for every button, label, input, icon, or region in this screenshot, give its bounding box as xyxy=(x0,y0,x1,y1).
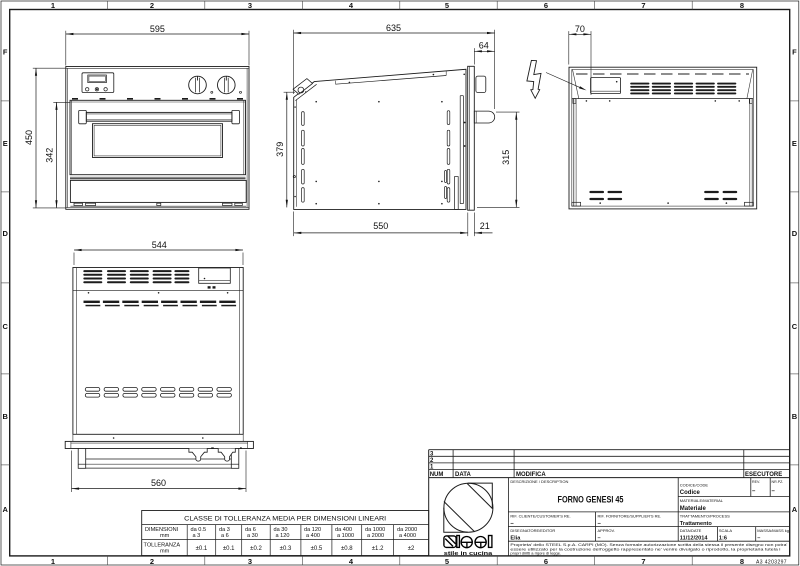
svg-text:a 30: a 30 xyxy=(247,533,258,539)
svg-text:CLASSE DI TOLLERANZA MEDIA PER: CLASSE DI TOLLERANZA MEDIA PER DIMENSION… xyxy=(184,515,386,522)
svg-text:8: 8 xyxy=(740,1,744,10)
svg-text:da 2000: da 2000 xyxy=(397,527,417,533)
svg-text:a 400: a 400 xyxy=(306,533,320,539)
svg-text:342: 342 xyxy=(45,148,55,163)
svg-text:2: 2 xyxy=(150,1,154,10)
svg-text:1: 1 xyxy=(51,557,55,566)
svg-text:TRATTAMENTO/PROCESS: TRATTAMENTO/PROCESS xyxy=(680,514,730,519)
svg-text:6: 6 xyxy=(544,1,548,10)
svg-text:8: 8 xyxy=(740,557,744,566)
svg-text:da 0.5: da 0.5 xyxy=(191,527,207,533)
svg-text:E: E xyxy=(792,139,797,148)
svg-text:propri diritti a rigore di leg: propri diritti a rigore di legge. xyxy=(510,551,561,556)
svg-text:–: – xyxy=(598,536,601,542)
svg-text:–: – xyxy=(757,536,760,542)
svg-text:A: A xyxy=(2,505,8,514)
svg-text:a 120: a 120 xyxy=(276,533,290,539)
svg-text:mm: mm xyxy=(160,549,170,555)
svg-text:±0.2: ±0.2 xyxy=(250,546,262,552)
svg-text:D: D xyxy=(792,229,798,238)
svg-text:595: 595 xyxy=(150,24,165,34)
svg-text:560: 560 xyxy=(151,478,166,488)
svg-text:1:6: 1:6 xyxy=(719,536,727,542)
svg-text:REV.: REV. xyxy=(752,480,760,484)
svg-text:a 4000: a 4000 xyxy=(399,533,416,539)
svg-text:da 6: da 6 xyxy=(245,527,256,533)
svg-text:da 3: da 3 xyxy=(219,527,230,533)
svg-text:5: 5 xyxy=(445,557,449,566)
svg-text:stile in cucina: stile in cucina xyxy=(444,551,493,557)
svg-text:7: 7 xyxy=(641,557,645,566)
svg-text:RIF. CLIENTE/CUSTOMER'S RE.: RIF. CLIENTE/CUSTOMER'S RE. xyxy=(510,514,570,519)
svg-text:F: F xyxy=(3,48,8,57)
svg-text:544: 544 xyxy=(152,240,167,250)
svg-text:a 3: a 3 xyxy=(193,533,201,539)
svg-text:A: A xyxy=(792,505,798,514)
svg-text:a 1000: a 1000 xyxy=(337,533,354,539)
svg-text:MASSA/MASS kg: MASSA/MASS kg xyxy=(757,528,789,533)
svg-text:64: 64 xyxy=(479,40,489,50)
svg-text:70: 70 xyxy=(575,24,585,34)
svg-text:RIF. FORNITORE/SUPPLIER'S RE.: RIF. FORNITORE/SUPPLIER'S RE. xyxy=(598,514,662,519)
svg-text:A3 4203297: A3 4203297 xyxy=(756,560,787,566)
svg-text:a 6: a 6 xyxy=(221,533,229,539)
svg-text:C: C xyxy=(2,322,8,331)
svg-text:SCALA: SCALA xyxy=(719,528,732,533)
svg-text:3: 3 xyxy=(248,1,252,10)
svg-text:±0.1: ±0.1 xyxy=(223,546,235,552)
svg-text:B: B xyxy=(792,412,798,421)
svg-text:E: E xyxy=(3,139,8,148)
svg-text:Codice: Codice xyxy=(680,490,701,496)
svg-text:NUM: NUM xyxy=(430,472,444,478)
svg-text:APPROV.: APPROV. xyxy=(598,528,615,533)
svg-text:TOLLERANZA: TOLLERANZA xyxy=(144,543,181,549)
svg-text:da 120: da 120 xyxy=(304,527,321,533)
svg-text:550: 550 xyxy=(373,221,388,231)
svg-text:1: 1 xyxy=(51,1,55,10)
svg-text:DISEGNATORE/EDITOR: DISEGNATORE/EDITOR xyxy=(510,528,555,533)
svg-text:±0.5: ±0.5 xyxy=(311,546,323,552)
svg-text:a 2000: a 2000 xyxy=(367,533,384,539)
svg-text:C: C xyxy=(792,322,798,331)
svg-text:CODICE/CODE: CODICE/CODE xyxy=(680,482,709,487)
svg-text:635: 635 xyxy=(386,23,401,33)
svg-text:MATERIALE/MATERIAL: MATERIALE/MATERIAL xyxy=(680,498,724,503)
svg-text:3: 3 xyxy=(248,557,252,566)
svg-text:450: 450 xyxy=(24,130,34,145)
svg-text:2: 2 xyxy=(150,557,154,566)
svg-text:mm: mm xyxy=(160,533,170,539)
svg-text:F: F xyxy=(792,48,797,57)
svg-text:DIMENSIONI: DIMENSIONI xyxy=(145,527,179,533)
svg-text:21: 21 xyxy=(480,221,490,231)
svg-text:DATA/DATE: DATA/DATE xyxy=(680,528,702,533)
svg-text:D: D xyxy=(2,229,8,238)
svg-text:DESCRIZIONE / DESCRIPTION: DESCRIZIONE / DESCRIPTION xyxy=(510,479,568,484)
svg-text:315: 315 xyxy=(501,150,511,165)
svg-text:6: 6 xyxy=(544,557,548,566)
svg-text:7: 7 xyxy=(641,1,645,10)
svg-text:FORNO GENESI 45: FORNO GENESI 45 xyxy=(558,495,625,506)
svg-text:B: B xyxy=(2,412,8,421)
svg-text:±0.8: ±0.8 xyxy=(341,546,353,552)
svg-text:±1.2: ±1.2 xyxy=(372,546,384,552)
svg-text:MODIFICA: MODIFICA xyxy=(516,472,546,478)
svg-text:±2: ±2 xyxy=(408,546,415,552)
svg-text:379: 379 xyxy=(275,142,285,157)
svg-text:da 1000: da 1000 xyxy=(365,527,385,533)
svg-text:5: 5 xyxy=(445,1,449,10)
svg-text:DATA: DATA xyxy=(455,472,471,478)
svg-text:ESECUTORE: ESECUTORE xyxy=(745,472,782,478)
svg-text:NR.PZ.: NR.PZ. xyxy=(772,480,784,484)
svg-text:da 30: da 30 xyxy=(274,527,288,533)
svg-text:±0.3: ±0.3 xyxy=(280,546,292,552)
svg-text:Trattamento: Trattamento xyxy=(680,521,713,527)
svg-text:±0.1: ±0.1 xyxy=(196,546,208,552)
svg-text:Elia: Elia xyxy=(510,536,521,542)
svg-text:Materiale: Materiale xyxy=(680,506,707,512)
svg-text:11/12/2014: 11/12/2014 xyxy=(680,536,709,542)
svg-text:da 400: da 400 xyxy=(335,527,352,533)
